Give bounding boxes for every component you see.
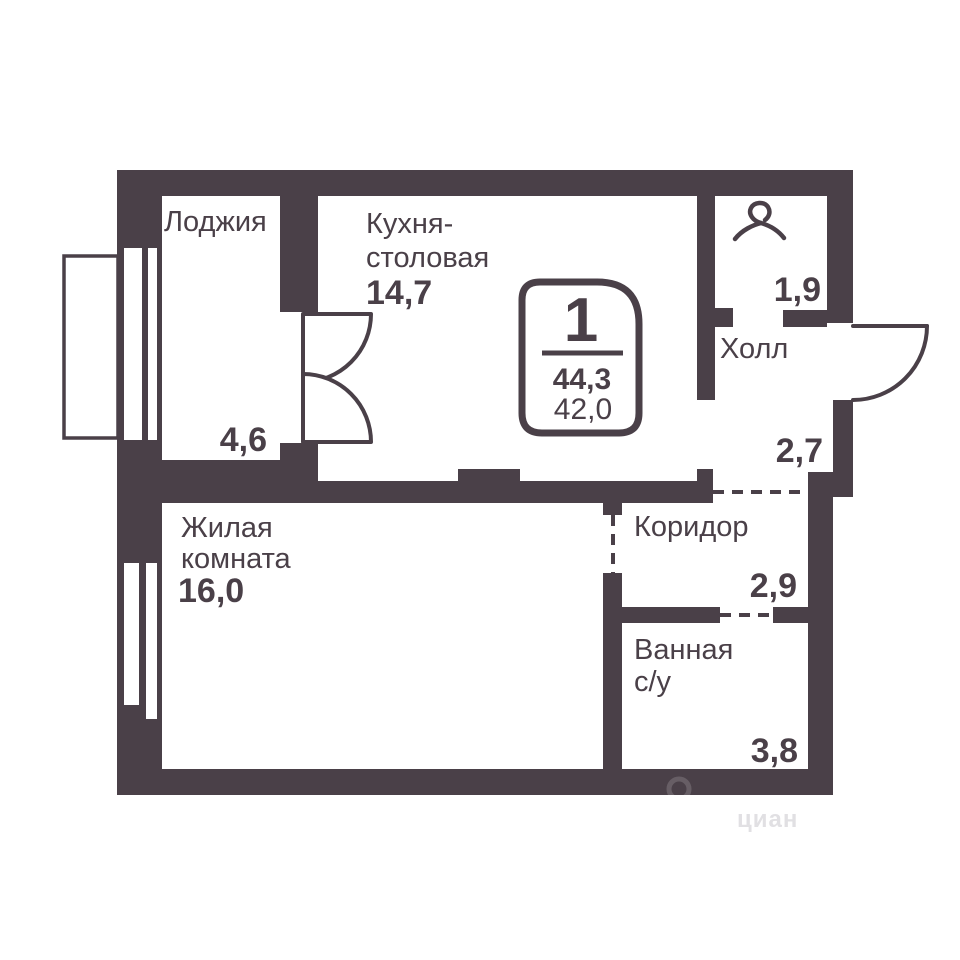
- french-door-leaf-bottom: [303, 374, 371, 442]
- wall-bathroom-left: [603, 573, 622, 769]
- wall-wardrobe-stub: [715, 308, 733, 327]
- room-area-kitchen: 14,7: [366, 274, 432, 312]
- room-label-living-1: Жилая: [181, 512, 273, 544]
- wall-bathroom-top-right: [773, 607, 808, 623]
- room-area-living: 16,0: [178, 572, 244, 610]
- entrance-door-arc: [853, 326, 927, 400]
- wall-bathroom-top-left: [622, 607, 720, 623]
- room-label-kitchen-1: Кухня-: [366, 208, 453, 240]
- wall-top: [117, 170, 853, 196]
- apartment-badge: 1 44,3 42,0: [522, 282, 639, 433]
- wall-kitchen-hall: [697, 196, 715, 400]
- balcony-outline: [64, 256, 118, 438]
- living-window-outer-slat: [124, 563, 139, 705]
- wall-loggia-bottom: [117, 460, 318, 503]
- floor-plan-svg: Лоджия 4,6 Кухня- столовая 14,7 1,9 Холл…: [0, 0, 960, 960]
- badge-rooms-count: 1: [564, 286, 598, 355]
- room-area-hall: 2,7: [776, 432, 823, 470]
- wall-divider-step: [458, 469, 520, 483]
- room-label-bathroom-1: Ванная: [634, 634, 733, 666]
- room-label-living-2: комната: [181, 543, 292, 575]
- wall-loggia-right-upper: [280, 170, 318, 312]
- loggia-window-outer-slat: [124, 248, 142, 440]
- room-label-kitchen-2: столовая: [366, 242, 489, 274]
- room-area-corridor: 2,9: [750, 567, 797, 605]
- room-label-bathroom-2: с/у: [634, 666, 672, 698]
- badge-living-area: 42,0: [554, 393, 612, 426]
- wall-bottom: [117, 769, 833, 795]
- loggia-window-inner-slat: [148, 248, 157, 440]
- wall-divider-stub: [697, 469, 713, 483]
- room-area-wardrobe: 1,9: [774, 271, 821, 309]
- wall-corridor-left-stub: [603, 498, 622, 515]
- living-window-inner-slat: [146, 563, 157, 719]
- room-label-hall: Холл: [720, 333, 788, 365]
- wall-right-upper: [827, 170, 853, 323]
- room-area-loggia: 4,6: [220, 421, 267, 459]
- badge-total-area: 44,3: [553, 363, 611, 396]
- watermark-text: циан: [737, 806, 798, 833]
- floor-plan-page: Лоджия 4,6 Кухня- столовая 14,7 1,9 Холл…: [0, 0, 960, 960]
- wall-kitchen-living-divider: [318, 481, 713, 503]
- room-label-loggia: Лоджия: [164, 206, 267, 238]
- hanger-icon: [735, 203, 784, 239]
- french-door-leaf-top: [303, 314, 371, 382]
- room-area-bathroom: 3,8: [751, 732, 798, 770]
- wall-right-mid: [833, 400, 853, 497]
- room-label-corridor: Коридор: [634, 511, 749, 543]
- wall-right-lower: [808, 472, 833, 795]
- wall-wardrobe-bottom: [783, 310, 827, 327]
